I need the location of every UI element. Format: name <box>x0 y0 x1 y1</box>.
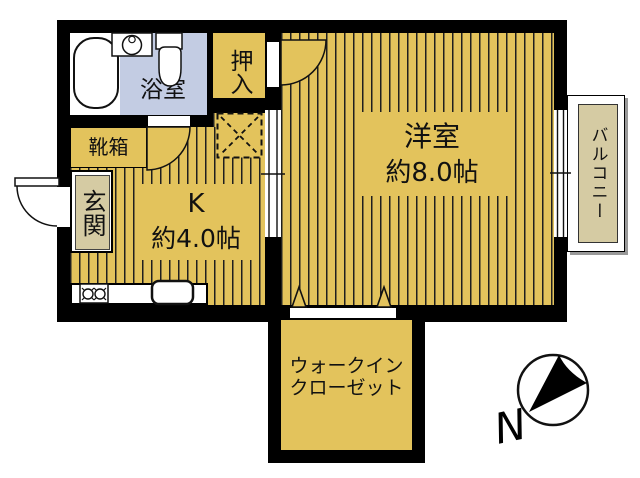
stove-burners-icon <box>80 284 108 303</box>
fridge-space-box <box>218 114 262 158</box>
k-western-window-icon <box>261 110 285 237</box>
bathroom-door-arc <box>147 127 190 170</box>
toilet-icon <box>156 33 182 86</box>
kitchen-sink-icon <box>152 281 193 304</box>
western-door-arc <box>281 40 326 85</box>
floor-plan: 靴箱 玄関 バルコニー ウォークイン クローゼット 浴室 押入 洋室 約8.0帖… <box>0 0 640 478</box>
balcony-window-icon <box>550 110 571 237</box>
entrance-door-arc <box>15 178 59 226</box>
north-arrow-icon: N <box>490 355 588 454</box>
plan-lineart: N <box>0 0 640 478</box>
washing-machine-icon <box>112 33 152 56</box>
folding-door-markers <box>292 287 391 307</box>
